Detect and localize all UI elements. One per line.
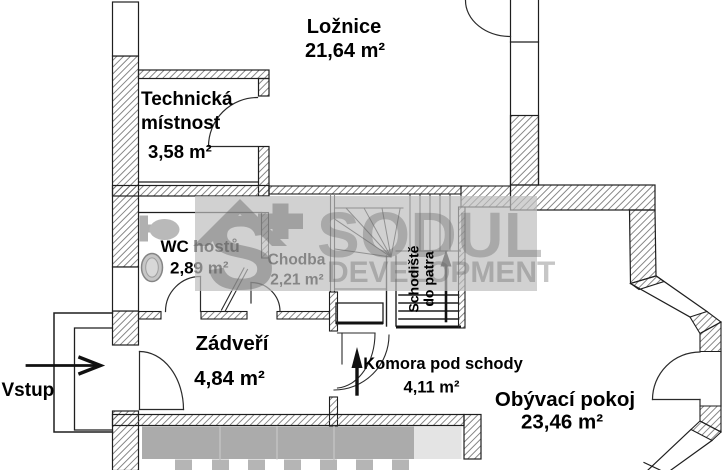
svg-text:21,64 m²: 21,64 m² [305, 40, 385, 62]
svg-text:S: S [206, 195, 276, 312]
svg-text:23,46 m²: 23,46 m² [521, 411, 603, 434]
svg-text:Komora pod schody: Komora pod schody [363, 355, 523, 373]
svg-text:4,11 m²: 4,11 m² [404, 379, 460, 397]
svg-text:4,84 m²: 4,84 m² [194, 367, 265, 390]
svg-text:DEVELOPMENT: DEVELOPMENT [327, 256, 555, 289]
svg-text:místnost: místnost [141, 113, 221, 134]
svg-text:Technická: Technická [141, 89, 233, 110]
svg-text:Zádveří: Zádveří [196, 332, 270, 355]
svg-text:Vstup: Vstup [2, 380, 55, 401]
svg-text:3,58 m²: 3,58 m² [148, 141, 212, 162]
svg-text:Obývací pokoj: Obývací pokoj [495, 388, 635, 411]
svg-text:do patra: do patra [421, 251, 437, 306]
svg-text:Schodiště: Schodiště [406, 245, 422, 312]
svg-text:Ložnice: Ložnice [307, 16, 381, 38]
